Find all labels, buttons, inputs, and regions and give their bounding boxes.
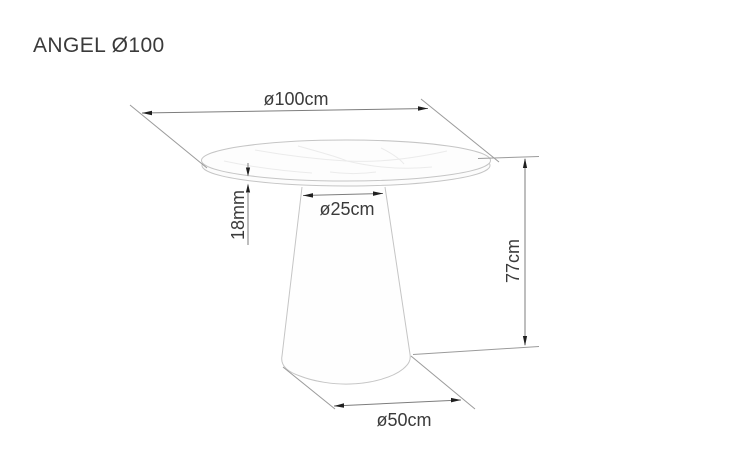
arrowhead-left: [142, 111, 152, 115]
dimension-label-top-diameter: ø100cm: [246, 89, 346, 109]
dimension-label-column-diameter: ø25cm: [297, 199, 397, 219]
arrowhead-right: [418, 106, 428, 110]
dimension-label-height: 77cm: [503, 219, 523, 303]
arrowhead-right: [451, 398, 461, 403]
dimension-label-base-diameter: ø50cm: [354, 410, 454, 430]
dimension-label-top-thickness: 18mm: [228, 173, 248, 257]
table-technical-drawing: [0, 0, 739, 465]
arrowhead-down: [523, 336, 527, 346]
product-dimension-sheet: ANGEL Ø100: [0, 0, 739, 465]
arrowhead-up: [523, 158, 527, 168]
